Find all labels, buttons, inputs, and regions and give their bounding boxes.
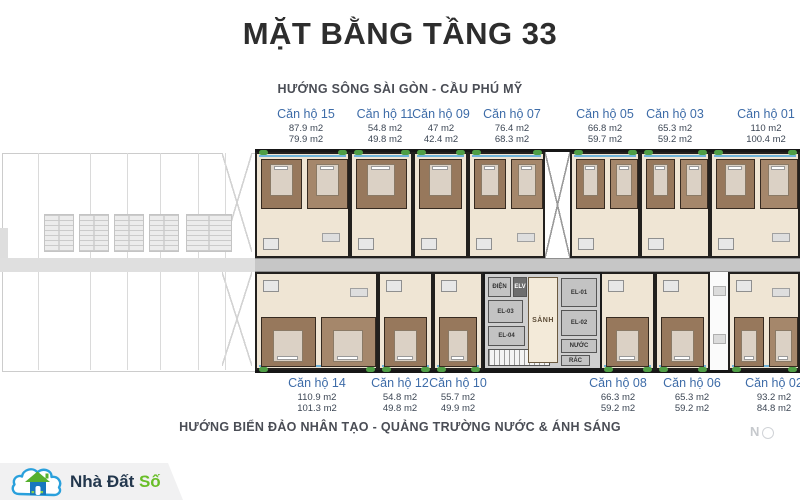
room-sanh: SẢNH <box>528 277 558 363</box>
pillow <box>521 166 532 170</box>
unit-area-net: 68.3 m2 <box>483 135 541 146</box>
plant-icon <box>659 367 668 372</box>
plant-icon <box>338 150 347 155</box>
unit-name: Căn hộ 14 <box>288 376 346 390</box>
page-title: MẶT BẰNG TẦNG 33 <box>0 16 800 52</box>
bathroom <box>263 238 279 250</box>
bathroom <box>648 238 664 250</box>
pillow <box>619 356 635 360</box>
plant-icon <box>421 367 430 372</box>
unit-name: Căn hộ 15 <box>277 107 335 121</box>
unit-name: Căn hộ 01 <box>737 107 795 121</box>
bed-icon <box>671 330 695 362</box>
plant-icon <box>354 150 363 155</box>
unit-area-net: 101.3 m2 <box>288 404 346 415</box>
pillow <box>619 166 629 170</box>
balcony-rail <box>259 155 346 157</box>
bathroom <box>476 238 492 250</box>
unit-name: Căn hộ 12 <box>371 376 429 390</box>
bedroom <box>356 159 407 209</box>
unit-name: Căn hộ 06 <box>663 376 721 390</box>
plant-icon <box>382 367 391 372</box>
unit-11 <box>350 152 413 258</box>
unit-area-net: 59.2 m2 <box>589 404 647 415</box>
bedroom <box>307 159 348 209</box>
bedroom <box>716 159 755 209</box>
unit-area-net: 42.4 m2 <box>412 135 470 146</box>
pillow <box>277 356 297 360</box>
pillow <box>585 166 595 170</box>
bedroom <box>474 159 506 209</box>
bed-icon <box>481 164 499 196</box>
bed-icon <box>429 164 453 196</box>
bed-icon <box>653 164 669 196</box>
logo-text-accent: Số <box>139 472 161 491</box>
pillow <box>451 356 465 360</box>
unit-area-net: 49.8 m2 <box>371 404 429 415</box>
stairs-icon <box>186 214 232 252</box>
bedroom <box>610 159 639 209</box>
unit-name: Căn hộ 10 <box>429 376 487 390</box>
bathroom <box>421 238 437 250</box>
unit-label-15: Căn hộ 1587.9 m279.9 m2 <box>277 107 335 145</box>
plant-icon <box>472 150 481 155</box>
pillow <box>728 166 742 170</box>
unit-name: Căn hộ 02 <box>745 376 800 390</box>
bedroom <box>576 159 605 209</box>
bed-icon <box>583 164 599 196</box>
bed-icon <box>741 330 757 362</box>
plant-icon <box>471 367 480 372</box>
balcony-rail <box>354 155 409 157</box>
unit-01 <box>710 152 800 258</box>
unit-label-07: Căn hộ 0776.4 m268.3 m2 <box>483 107 541 145</box>
bed-icon <box>616 330 640 362</box>
unit-area-net: 59.2 m2 <box>663 404 721 415</box>
unit-area-net: 59.2 m2 <box>646 135 704 146</box>
unit-label-06: Căn hộ 0665.3 m259.2 m2 <box>663 376 721 414</box>
bathroom <box>608 280 624 292</box>
pillow <box>371 166 390 170</box>
bedroom <box>661 317 704 367</box>
bed-icon <box>448 330 469 362</box>
unit-label-14: Căn hộ 14110.9 m2101.3 m2 <box>288 376 346 414</box>
pillow <box>397 356 413 360</box>
unit-name: Căn hộ 09 <box>412 107 470 121</box>
facade-bottom-wall <box>255 370 800 373</box>
table-icon <box>322 233 340 242</box>
bedroom <box>261 159 302 209</box>
room-dien: ĐIỆN <box>488 277 511 297</box>
unit-area-net: 79.9 m2 <box>277 135 335 146</box>
unit-label-05: Căn hộ 0566.8 m259.7 m2 <box>576 107 634 145</box>
table-icon <box>772 288 790 297</box>
bathroom <box>718 238 734 250</box>
bedroom <box>439 317 477 367</box>
bed-icon <box>725 164 746 196</box>
direction-bottom-label: HƯỚNG BIỂN ĐẢO NHÂN TẠO - QUẢNG TRƯỜNG N… <box>0 420 800 434</box>
pillow <box>337 356 357 360</box>
plant-icon <box>456 150 465 155</box>
plant-icon <box>259 150 268 155</box>
pillow <box>484 166 495 170</box>
room-elv: ELV <box>513 277 527 297</box>
stairs-icon <box>114 214 144 252</box>
unit-14 <box>255 272 378 370</box>
plant-icon <box>574 150 583 155</box>
room-el03: EL-03 <box>488 300 523 323</box>
room-el02: EL-02 <box>561 310 597 336</box>
room-nuoc: NƯỚC <box>561 339 597 353</box>
unit-label-09: Căn hộ 0947 m242.4 m2 <box>412 107 470 145</box>
bathroom <box>386 280 402 292</box>
wing-corridor <box>0 258 255 272</box>
north-letter: N <box>750 424 759 439</box>
compass-ring-icon <box>762 427 774 439</box>
stairs-icon <box>149 214 179 252</box>
unit-12 <box>378 272 433 370</box>
unit-03 <box>640 152 710 258</box>
bed-icon <box>367 164 395 196</box>
unit-name: Căn hộ 05 <box>576 107 634 121</box>
logo-text-primary: Nhà Đất <box>70 472 134 491</box>
unit-label-12: Căn hộ 1254.8 m249.8 m2 <box>371 376 429 414</box>
pillow <box>674 356 690 360</box>
plant-icon <box>533 150 542 155</box>
plant-icon <box>714 150 723 155</box>
plant-icon <box>417 150 426 155</box>
stairs-icon <box>79 214 109 252</box>
unit-07 <box>468 152 545 258</box>
unit-label-11: Căn hộ 1154.8 m249.8 m2 <box>357 107 414 145</box>
unit-name: Căn hộ 08 <box>589 376 647 390</box>
bedroom <box>680 159 709 209</box>
pillow <box>744 356 754 360</box>
service-gap <box>710 272 728 370</box>
bedroom <box>321 317 376 367</box>
bed-icon <box>768 164 789 196</box>
bed-icon <box>394 330 418 362</box>
table-icon <box>517 233 535 242</box>
stairs-icon <box>44 214 74 252</box>
unit-name: Căn hộ 11 <box>357 107 414 121</box>
unit-05 <box>570 152 640 258</box>
unit-02 <box>728 272 800 370</box>
bedroom <box>646 159 675 209</box>
bed-icon <box>616 164 632 196</box>
table-icon <box>350 288 368 297</box>
plant-icon <box>437 367 446 372</box>
unit-name: Căn hộ 07 <box>483 107 541 121</box>
unit-label-08: Căn hộ 0866.3 m259.2 m2 <box>589 376 647 414</box>
bed-icon <box>333 330 363 362</box>
pillow <box>432 166 448 170</box>
bathroom <box>663 280 679 292</box>
bedroom <box>606 317 649 367</box>
bedroom <box>419 159 462 209</box>
room-el01: EL-01 <box>561 278 597 307</box>
room-el04: EL-04 <box>488 326 525 346</box>
bedroom <box>511 159 543 209</box>
service-core: ĐIỆN ELV EL-03 EL-04 SẢNH EL-01 EL-02 NƯ… <box>483 272 602 370</box>
bathroom <box>263 280 279 292</box>
unit-label-03: Căn hộ 0365.3 m259.2 m2 <box>646 107 704 145</box>
pillow <box>320 166 335 170</box>
bedroom <box>760 159 799 209</box>
logo[interactable]: Nhà Đất Số <box>10 465 161 499</box>
bed-icon <box>316 164 339 196</box>
pillow <box>771 166 785 170</box>
bedroom <box>261 317 316 367</box>
bedroom <box>384 317 427 367</box>
logo-text: Nhà Đất Số <box>70 472 161 492</box>
unit-label-10: Căn hộ 1055.7 m249.9 m2 <box>429 376 487 414</box>
bathroom <box>578 238 594 250</box>
plant-icon <box>732 367 741 372</box>
plant-icon <box>366 367 375 372</box>
bed-icon <box>686 164 702 196</box>
unit-area-net: 49.8 m2 <box>357 135 414 146</box>
plant-icon <box>643 367 652 372</box>
direction-top-label: HƯỚNG SÔNG SÀI GÒN - CẦU PHÚ MỸ <box>0 82 800 96</box>
north-indicator: N <box>750 424 774 439</box>
unit-08 <box>600 272 655 370</box>
unit-label-01: Căn hộ 01110 m2100.4 m2 <box>737 107 795 145</box>
corridor <box>255 258 800 272</box>
pillow <box>778 356 788 360</box>
bed-icon <box>775 330 791 362</box>
balcony-rail <box>417 155 464 157</box>
plant-icon <box>259 367 268 372</box>
bedroom <box>734 317 764 367</box>
table-icon <box>772 233 790 242</box>
plant-icon <box>698 150 707 155</box>
cross-brace-icon <box>545 152 570 258</box>
floorplan-page: MẶT BẰNG TẦNG 33 HƯỚNG SÔNG SÀI GÒN - CẦ… <box>0 0 800 500</box>
plant-icon <box>788 150 797 155</box>
unit-label-02: Căn hộ 0293.2 m284.8 m2 <box>745 376 800 414</box>
unit-15 <box>255 152 350 258</box>
pillow <box>689 166 699 170</box>
unit-10 <box>433 272 483 370</box>
bed-icon <box>270 164 293 196</box>
balcony-rail <box>644 155 706 157</box>
bathroom <box>736 280 752 292</box>
bathroom <box>441 280 457 292</box>
plant-icon <box>401 150 410 155</box>
unit-area-net: 49.9 m2 <box>429 404 487 415</box>
cross-brace-icon <box>222 272 252 366</box>
balcony-rail <box>472 155 541 157</box>
bed-icon <box>273 330 303 362</box>
bathroom <box>358 238 374 250</box>
bedroom <box>769 317 799 367</box>
plant-icon <box>604 367 613 372</box>
plant-icon <box>644 150 653 155</box>
unit-area-net: 84.8 m2 <box>745 404 800 415</box>
plant-icon <box>698 367 707 372</box>
unit-name: Căn hộ 03 <box>646 107 704 121</box>
plant-icon <box>788 367 797 372</box>
cloud-house-icon <box>10 465 64 499</box>
unit-area-net: 100.4 m2 <box>737 135 795 146</box>
pillow <box>655 166 665 170</box>
balcony-rail <box>574 155 636 157</box>
unit-09 <box>413 152 468 258</box>
plant-icon <box>628 150 637 155</box>
pillow <box>274 166 289 170</box>
bed-icon <box>518 164 536 196</box>
unit-area-net: 59.7 m2 <box>576 135 634 146</box>
balcony-rail <box>714 155 796 157</box>
unit-06 <box>655 272 710 370</box>
room-rac: RÁC <box>561 355 590 366</box>
